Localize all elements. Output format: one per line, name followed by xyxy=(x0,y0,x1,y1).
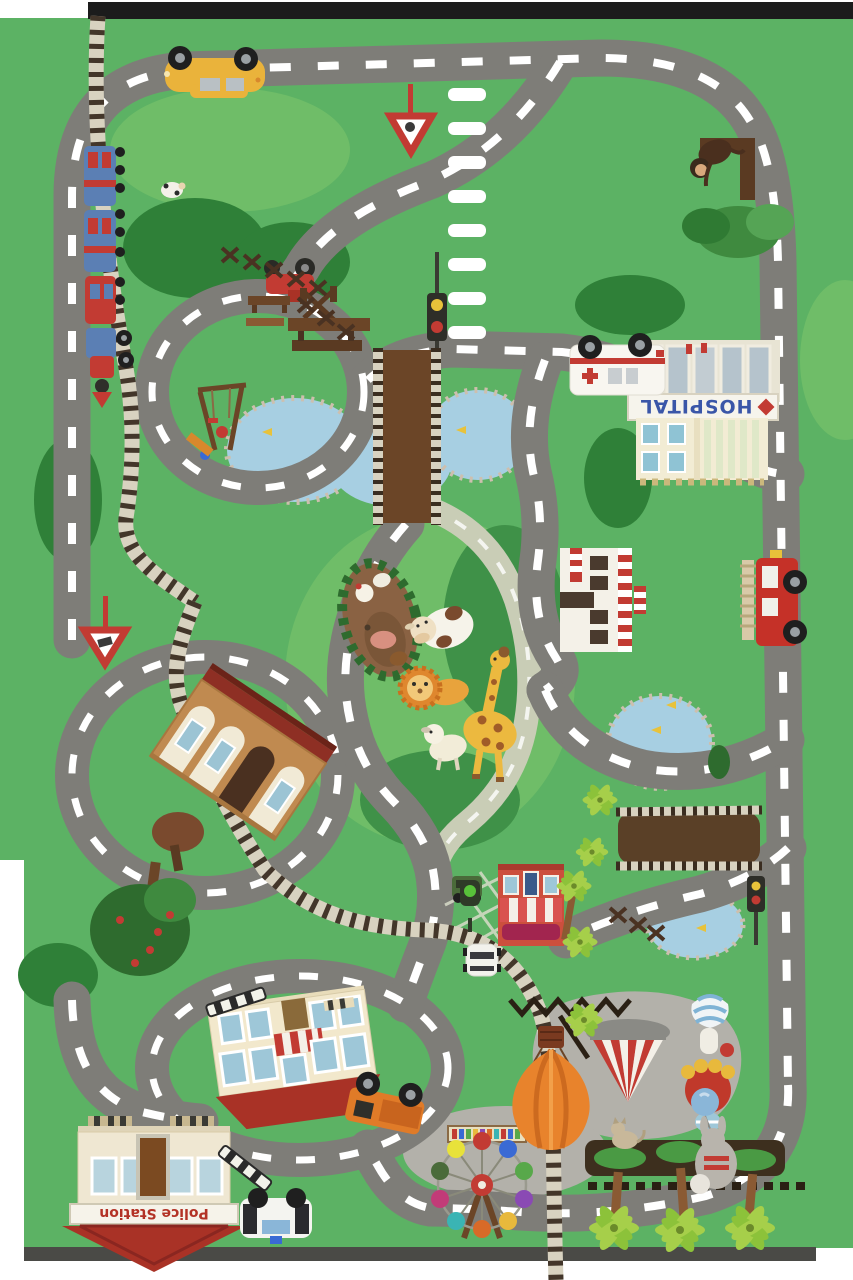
wooden-bridge-vertical xyxy=(374,348,441,525)
play-mat-photo: HOSPITAL xyxy=(0,0,853,1280)
play-mat-scene: HOSPITAL xyxy=(0,0,853,1280)
balloon-basket xyxy=(538,1026,564,1048)
photo-margin xyxy=(0,0,88,18)
police-light xyxy=(270,1236,282,1244)
wooden-bridge-horizontal xyxy=(616,810,762,866)
white-car xyxy=(463,944,501,976)
red-ball xyxy=(720,1043,734,1057)
hospital-sign: HOSPITAL xyxy=(628,394,778,420)
police-station-sign: Police Station xyxy=(70,1204,238,1224)
hospital-sign-text: HOSPITAL xyxy=(639,395,752,417)
top-frame-bar xyxy=(88,2,853,19)
police-station-sign-text: Police Station xyxy=(99,1205,208,1221)
shop-door xyxy=(524,872,538,896)
fire-truck-ladder xyxy=(740,566,756,626)
fire-truck xyxy=(740,550,807,646)
police-door xyxy=(138,1136,168,1198)
shop-banner xyxy=(502,924,560,940)
cypress-tree xyxy=(708,745,730,779)
awning-shop-building xyxy=(498,864,564,946)
